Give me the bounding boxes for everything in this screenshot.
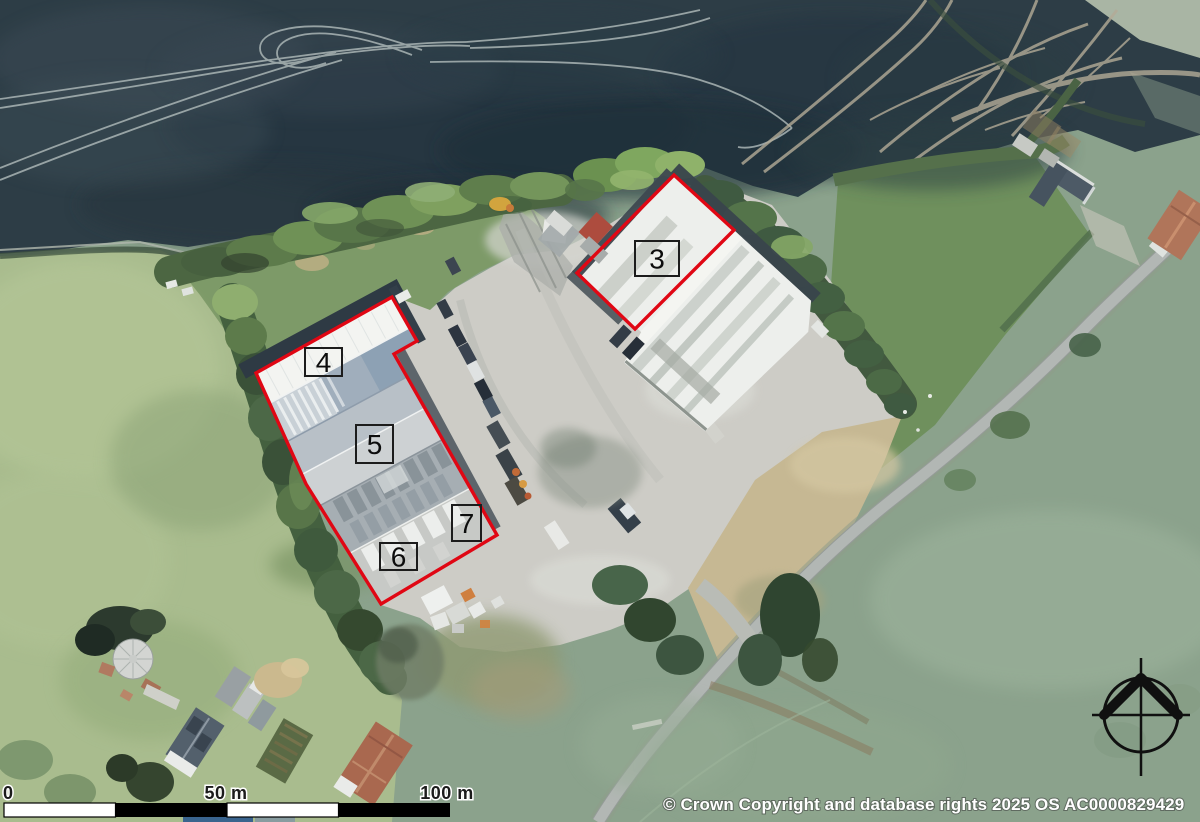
svg-text:0: 0	[3, 783, 14, 803]
svg-text:50 m: 50 m	[204, 783, 247, 803]
svg-text:4: 4	[316, 347, 332, 378]
svg-text:3: 3	[649, 244, 665, 275]
svg-text:6: 6	[391, 542, 407, 573]
svg-text:100 m: 100 m	[420, 783, 474, 803]
svg-text:7: 7	[459, 508, 475, 539]
svg-text:5: 5	[367, 429, 383, 460]
svg-text:© Crown Copyright and database: © Crown Copyright and database rights 20…	[663, 795, 1184, 814]
